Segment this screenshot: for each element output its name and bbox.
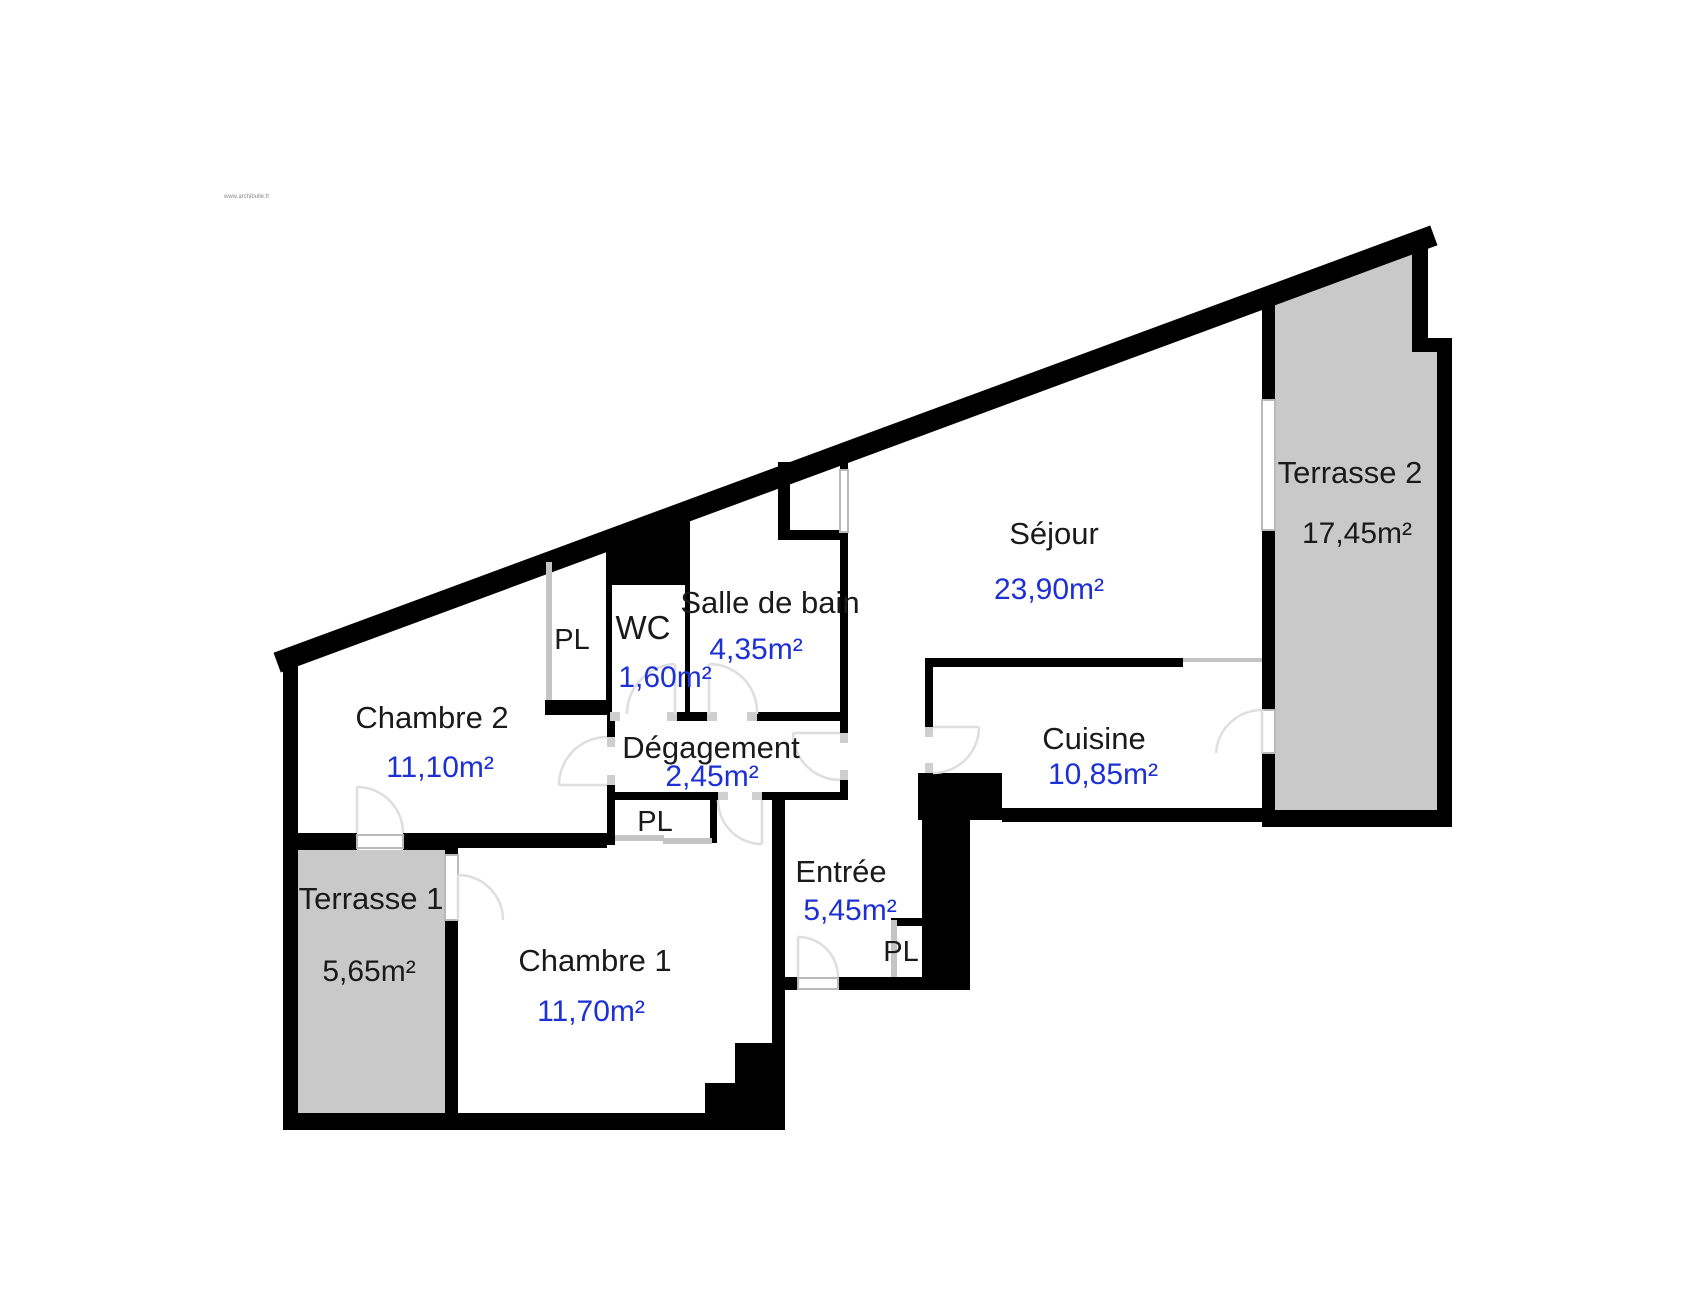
room-label-chambre1: Chambre 1: [518, 943, 671, 978]
door-arc-entree-entry: [798, 937, 838, 977]
room-area-wc: 1,60m²: [618, 661, 711, 694]
wall-left-outer: [283, 650, 298, 1130]
room-area-chambre1: 11,70m²: [537, 995, 645, 1028]
wall-degagement-bottom-right: [762, 792, 845, 800]
wall-shaft-upper: [918, 773, 1002, 820]
wall-terrasse2-left-c: [1262, 753, 1275, 812]
wall-degagement-top-right: [757, 712, 842, 721]
jamb-cuisine-top: [925, 727, 933, 737]
wall-cuisine-bottom: [1002, 808, 1262, 822]
window-salle-de-bain: [840, 470, 848, 532]
room-area-entree: 5,45m²: [803, 894, 896, 927]
floor-plan: www.archibulle.fr Séjour 23,90m² Terrass…: [0, 0, 1694, 1313]
door-arc-degagement-right: [793, 733, 840, 780]
window-chambre1-terrasse1: [445, 855, 458, 920]
wall-degagement-right-lower: [840, 780, 848, 800]
room-area-terrasse2: 17,45m²: [1302, 517, 1412, 550]
wall-chambre-divider: [445, 833, 607, 848]
jamb-sdb-right: [747, 712, 757, 721]
room-area-salle-de-bain: 4,35m²: [709, 633, 802, 666]
window-cuisine-terrasse2: [1262, 710, 1275, 753]
wall-terrasse2-right-upper: [1412, 236, 1428, 352]
window-chambre2-terrasse1: [357, 835, 403, 848]
opening-sejour-cuisine: [1183, 658, 1262, 662]
jamb-deg-right-bottom: [840, 770, 848, 780]
jamb-entree-deg-left: [718, 792, 728, 800]
partition-pl-top-left: [546, 562, 552, 700]
wall-shaft-lower: [922, 815, 970, 990]
door-arc-chambre1-terrasse1: [458, 875, 503, 920]
door-arc-entree-degagement: [718, 800, 762, 844]
room-area-chambre2: 11,10m²: [386, 751, 494, 784]
wall-entree-bottom-right: [838, 977, 922, 990]
jamb-chambre2-top: [607, 737, 615, 747]
room-label-chambre2: Chambre 2: [355, 700, 508, 735]
closet-label-hall-bottom: PL: [637, 806, 672, 838]
wall-entree-bottom-left: [785, 977, 798, 990]
wall-sdb-notch-vertical: [778, 462, 790, 537]
room-area-sejour: 23,90m²: [994, 573, 1104, 606]
window-entree-threshold: [798, 978, 838, 989]
wall-pl-top-bottom: [545, 700, 610, 715]
room-label-cuisine: Cuisine: [1042, 721, 1145, 756]
jamb-chambre2-bottom: [607, 775, 615, 785]
floor-plan-page: www.archibulle.fr Séjour 23,90m² Terrass…: [0, 0, 1694, 1313]
room-label-wc: WC: [616, 609, 671, 646]
jamb-deg-right-top: [840, 733, 848, 743]
jamb-cuisine-bottom: [925, 763, 933, 773]
room-label-entree: Entrée: [795, 854, 886, 889]
door-arc-chambre2-terrasse1: [357, 787, 403, 833]
watermark-text: www.archibulle.fr: [223, 194, 269, 200]
closet-label-entree: PL: [883, 936, 918, 968]
wall-sdb-notch-horizontal: [778, 530, 848, 540]
closet-label-hall-top: PL: [554, 624, 589, 656]
jamb-wc-left: [610, 712, 620, 721]
wall-pl-hall-right: [710, 792, 717, 843]
wall-degagement-top-mid: [677, 712, 707, 721]
sliding-door-pl-hall-2: [663, 838, 712, 844]
door-arc-degagement-chambre2: [559, 737, 607, 785]
wall-cuisine-top: [925, 658, 1183, 667]
wall-degagement-bottom-left: [607, 792, 718, 800]
window-sejour-terrasse2: [1262, 400, 1275, 530]
wall-terrasse2-left-a: [1262, 290, 1275, 400]
door-arc-cuisine-terrasse2: [1216, 710, 1262, 753]
room-label-terrasse2: Terrasse 2: [1278, 455, 1423, 490]
wall-entree-left: [772, 800, 785, 977]
wall-terrasse2-bottom: [1262, 810, 1452, 827]
room-area-cuisine: 10,85m²: [1048, 758, 1158, 791]
wall-terrasse1-top-left: [283, 833, 357, 850]
jamb-entree-deg-right: [752, 792, 762, 800]
door-arc-cuisine: [933, 727, 979, 773]
room-label-terrasse1: Terrasse 1: [299, 881, 444, 916]
room-label-sejour: Séjour: [1009, 516, 1099, 551]
wall-sdb-sejour-lower: [840, 532, 848, 723]
wall-terrasse1-right-lower: [445, 920, 458, 1113]
wall-terrasse2-right-lower: [1437, 338, 1452, 827]
room-area-degagement: 2,45m²: [665, 760, 758, 793]
wall-cuisine-left: [925, 658, 933, 727]
wall-sdb-sejour-upper: [840, 449, 848, 470]
door-arc-salle-de-bain: [709, 664, 757, 714]
room-area-terrasse1: 5,65m²: [322, 955, 415, 988]
wall-terrasse2-left-b: [1262, 530, 1275, 710]
room-label-salle-de-bain: Salle de bain: [680, 585, 859, 620]
